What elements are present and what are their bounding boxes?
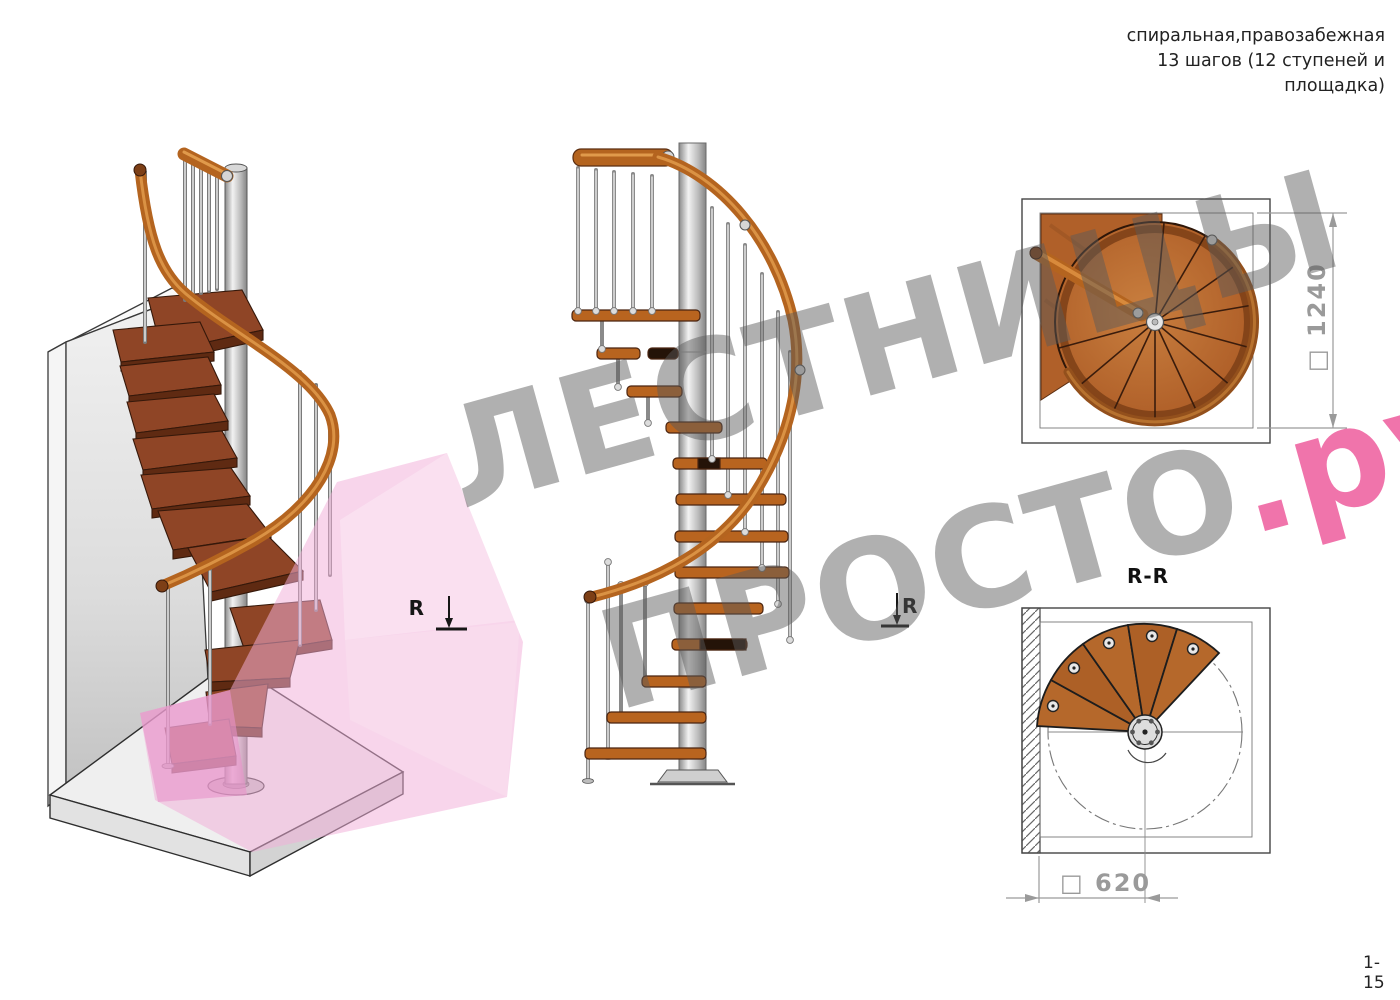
rail-joint (795, 365, 805, 375)
elevation-view (572, 143, 805, 784)
section-marker-right: R (881, 593, 917, 626)
plan-view: □ 1240 (1022, 199, 1347, 443)
arrowhead-up (1329, 213, 1337, 227)
step-dark (700, 639, 746, 650)
rail-connector (1133, 308, 1143, 318)
rail-end-cap (1030, 247, 1042, 259)
wall-side-face (48, 342, 66, 806)
step (585, 748, 706, 759)
section-view-label: R-R (1118, 564, 1178, 588)
handrail-end-cap (156, 580, 168, 592)
step (675, 531, 788, 542)
handrail-end-cap (584, 591, 596, 603)
step-dark (648, 348, 678, 359)
section-marker-letter: R (902, 594, 917, 618)
step (666, 422, 722, 433)
hub-center-dot (1142, 729, 1147, 734)
rail-joint (740, 220, 750, 230)
title-line: спиральная,правозабежная (1127, 24, 1385, 49)
step (674, 603, 763, 614)
step (627, 386, 682, 397)
section-dimension: □ 620 (1006, 856, 1178, 903)
dimension-label: □ 620 (1060, 869, 1151, 897)
column-base (658, 770, 727, 782)
arrowhead-left (1025, 894, 1039, 902)
section-marker-letter: R (409, 596, 424, 620)
step (675, 567, 789, 578)
title-line: площадка) (1127, 74, 1385, 99)
sheet-title: спиральная,правозабежная 13 шагов (12 ст… (1127, 24, 1385, 99)
dimension-label: □ 1240 (1303, 262, 1331, 372)
rail-connector (222, 171, 233, 182)
catalog-sheet: R R (0, 0, 1400, 1000)
baluster-foot (583, 779, 594, 784)
wall-hatch (1022, 608, 1040, 853)
title-line: 13 шагов (12 ступеней и (1127, 49, 1385, 74)
arrowhead-down (1329, 414, 1337, 428)
step (607, 712, 706, 723)
page-number: 1-15 (1363, 953, 1400, 993)
section-view: □ 620 (1006, 608, 1270, 903)
handrail-end-cap (134, 164, 146, 176)
drawing-canvas: R R (0, 0, 1400, 1000)
rail-connector (1207, 235, 1217, 245)
iso-render-view (48, 152, 523, 876)
step (642, 676, 706, 687)
iso-top-rail (184, 154, 227, 176)
plan-center-hub-dot (1152, 319, 1158, 325)
